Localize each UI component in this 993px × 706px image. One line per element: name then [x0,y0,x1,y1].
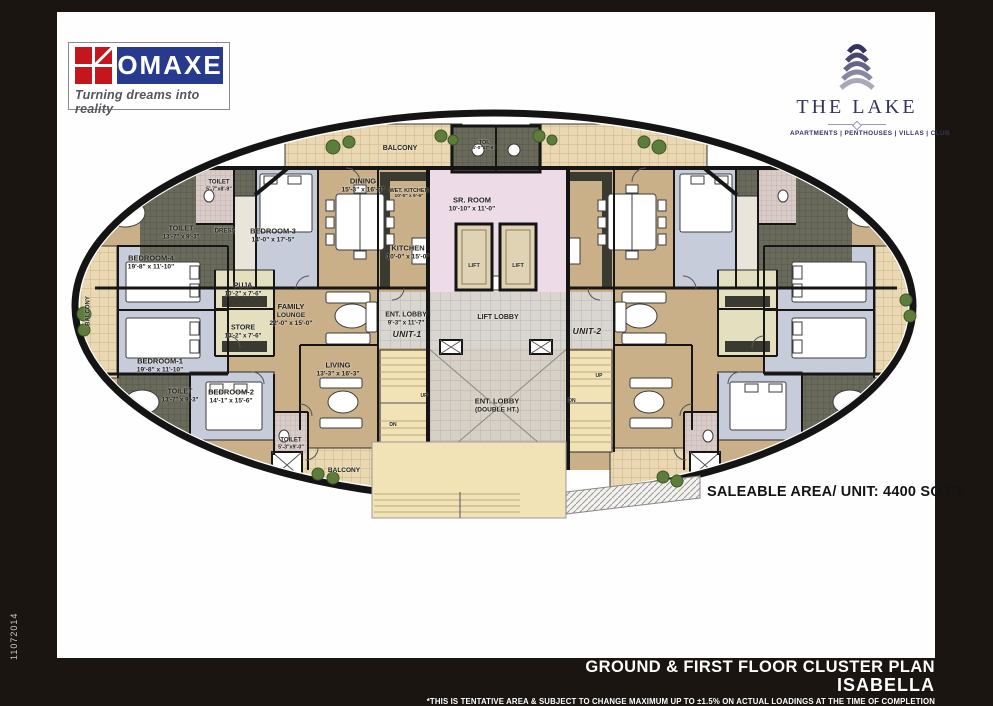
left-unit [78,124,462,494]
plan-subtitle: ISABELLA [35,676,935,696]
saleable-area-text: SALEABLE AREA/ UNIT: 4400 SQ.FT. [707,484,967,500]
central-core [428,126,568,468]
right-unit [530,124,914,494]
side-code: 11072014 [9,613,19,660]
plan-title: GROUND & FIRST FLOOR CLUSTER PLAN [35,659,935,676]
floor-plan [0,0,993,702]
footer: GROUND & FIRST FLOOR CLUSTER PLAN ISABEL… [35,659,935,706]
